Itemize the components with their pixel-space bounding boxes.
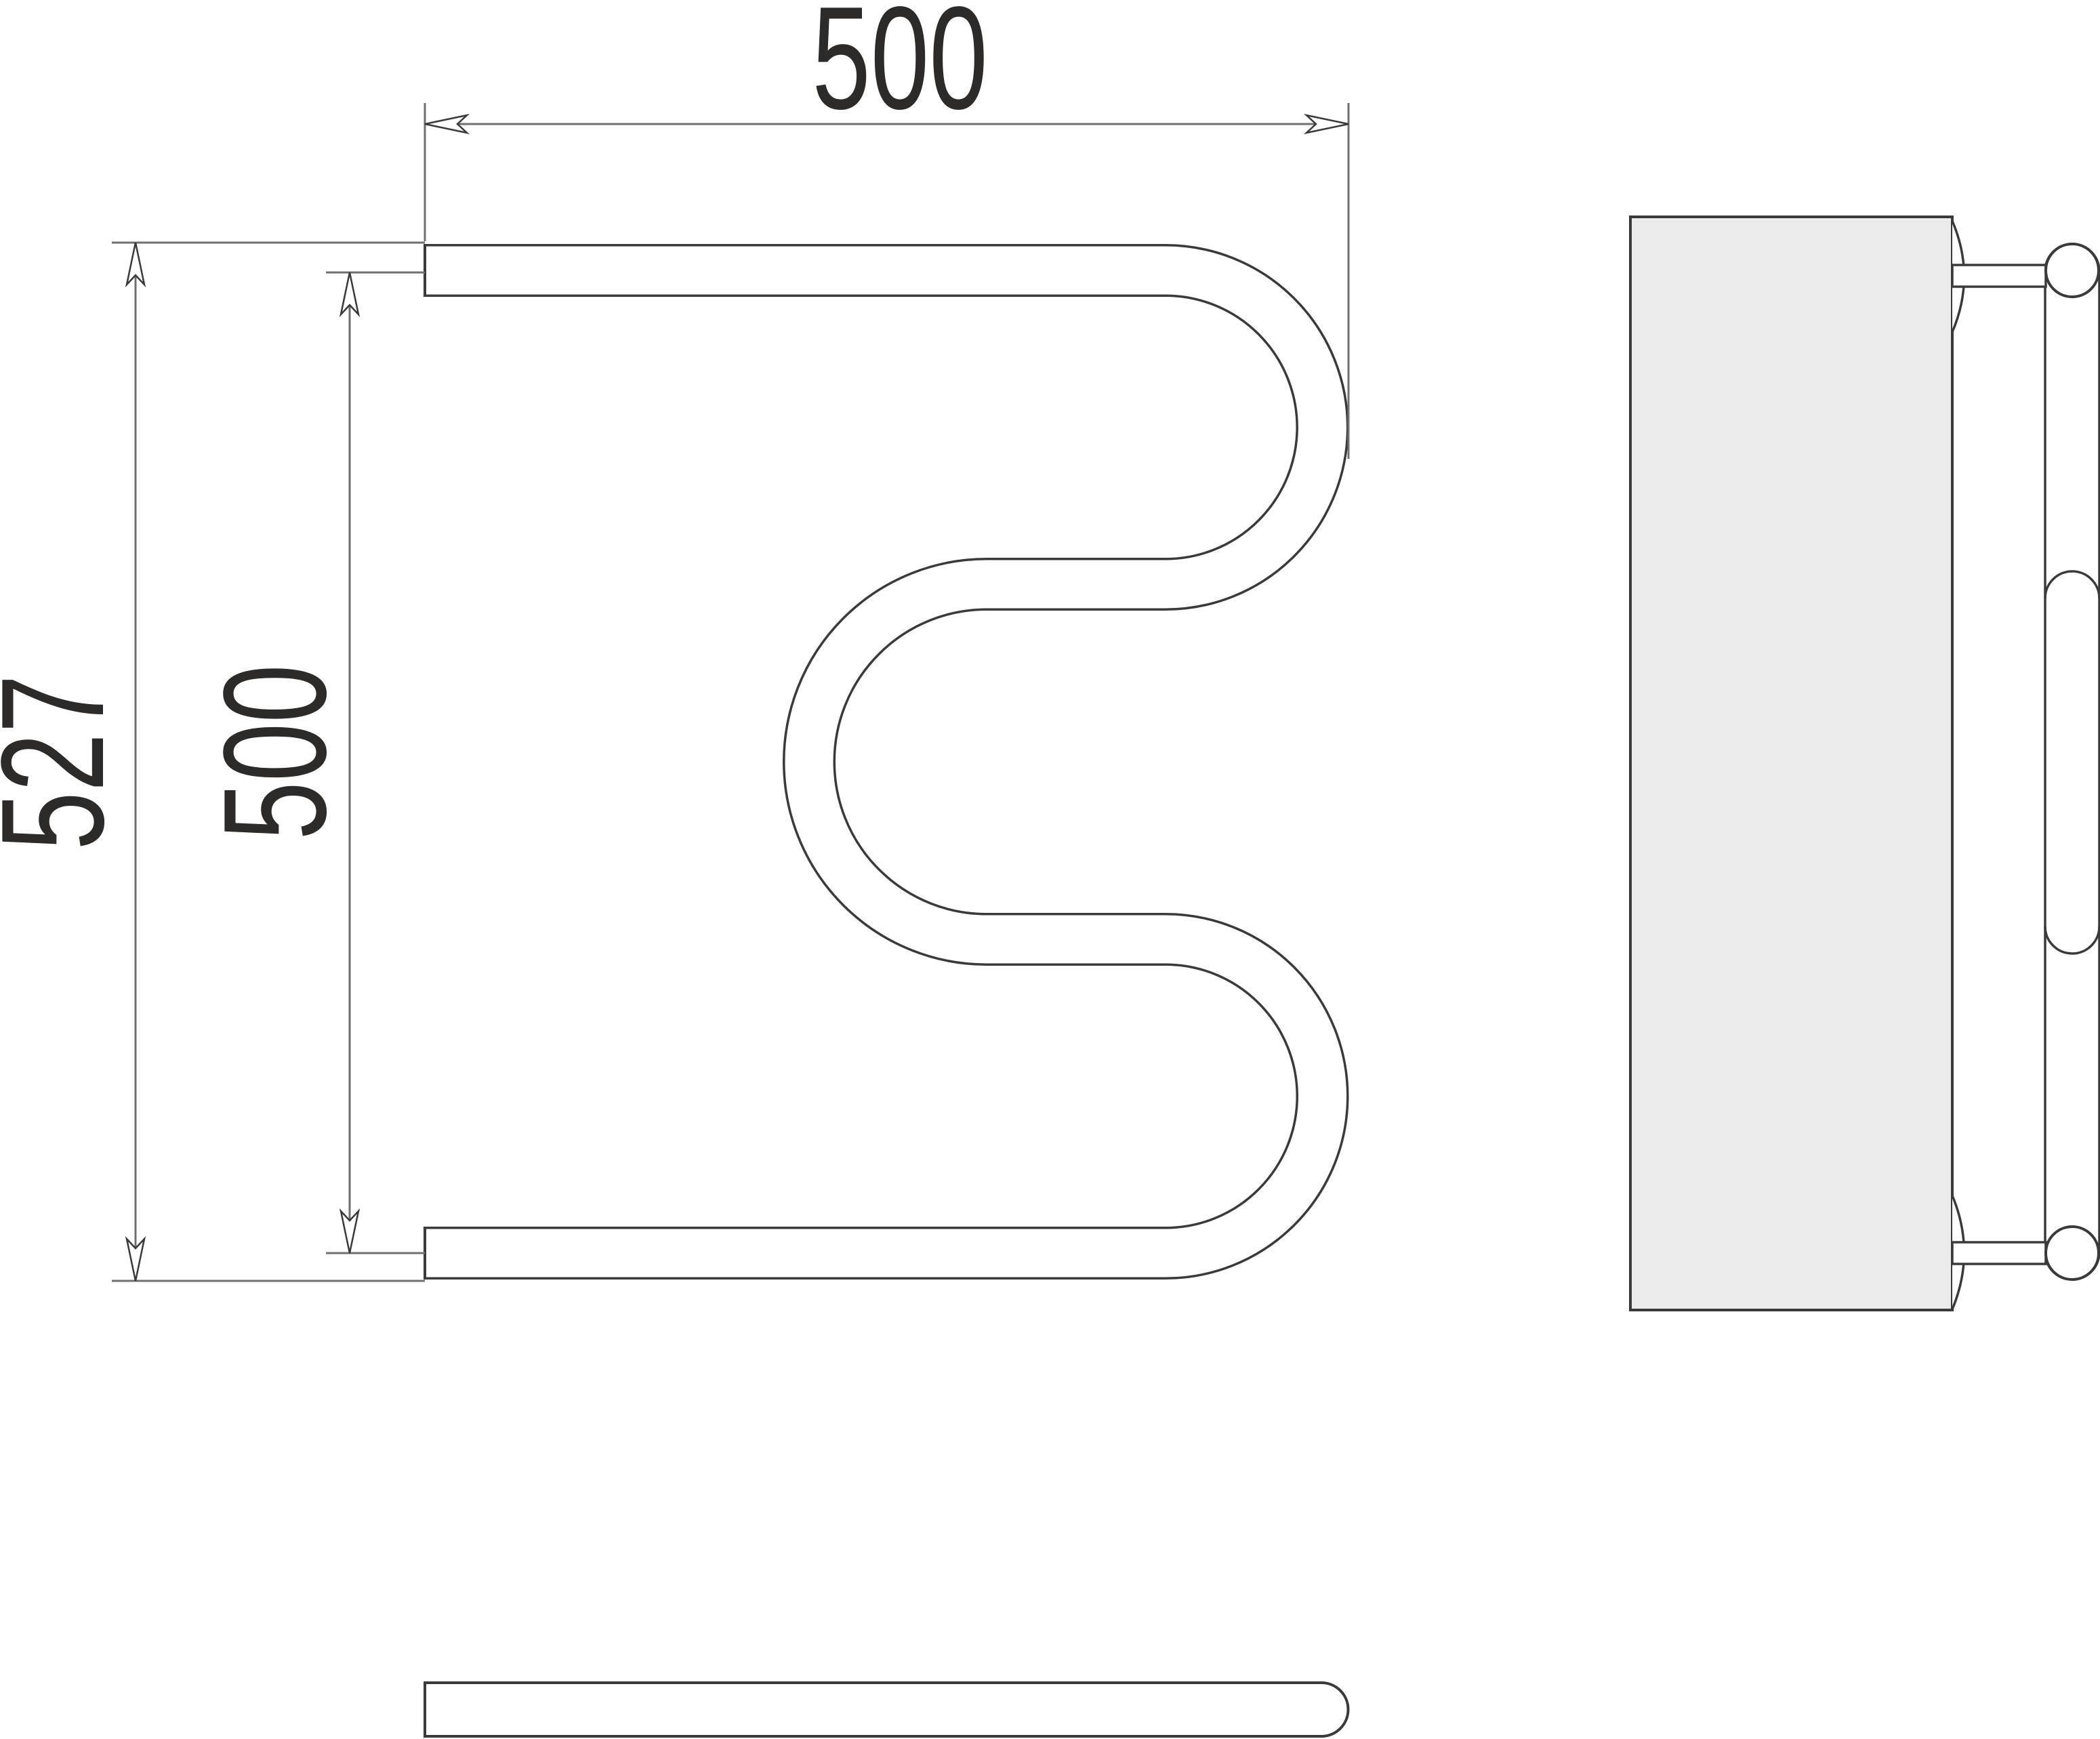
mounting-stub (1952, 1242, 2046, 1264)
dimension-label: 500 (193, 664, 356, 840)
dimension-label: 527 (0, 674, 134, 850)
sphere-cap (2046, 1227, 2099, 1280)
pipe-side-profile (2045, 244, 2099, 1280)
wall-panel (1630, 217, 1952, 1310)
pipe-top-projection (425, 1683, 1348, 1736)
mounting-stub (1952, 265, 2046, 287)
front-view (424, 270, 1323, 1253)
bottom-view (425, 1683, 1348, 1736)
sphere-cap (2046, 244, 2099, 297)
side-view (1630, 217, 2099, 1310)
dimension-axis-500: 500 (193, 272, 425, 1253)
dimension-label: 500 (812, 0, 987, 140)
technical-drawing-page: Technical drawing of M-shaped towel rail… (0, 0, 2100, 1739)
pipe-outline (424, 270, 1323, 1253)
technical-drawing: Technical drawing of M-shaped towel rail… (0, 0, 2100, 1739)
dimension-annotations: 500527500 (0, 0, 1348, 1281)
pipe-body (426, 270, 1323, 1253)
dimension-width-500: 500 (425, 0, 1348, 459)
